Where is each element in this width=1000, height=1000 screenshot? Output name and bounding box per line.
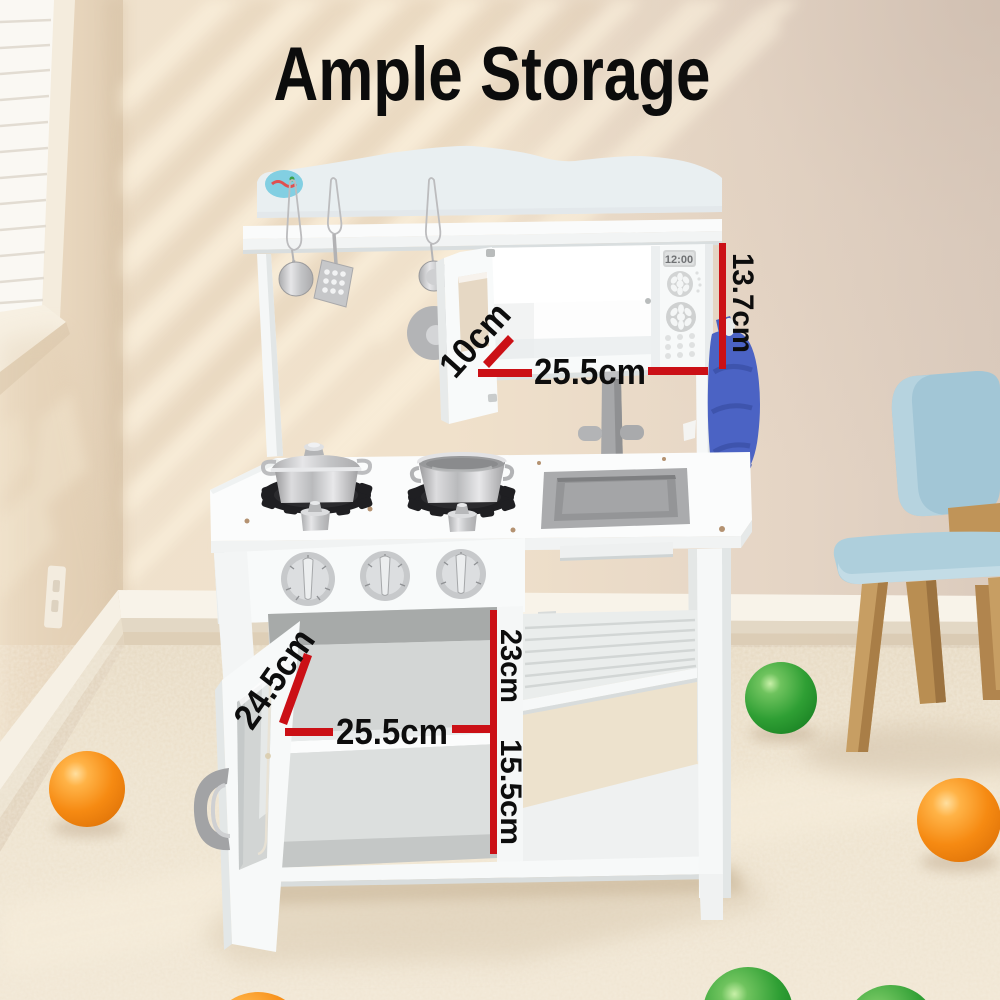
svg-text:Ample Storage: Ample Storage bbox=[274, 32, 711, 117]
svg-text:13.7cm: 13.7cm bbox=[726, 253, 759, 353]
svg-text:25.5cm: 25.5cm bbox=[336, 711, 448, 752]
svg-text:12:00: 12:00 bbox=[665, 254, 693, 266]
svg-text:23cm: 23cm bbox=[494, 629, 527, 703]
svg-text:15.5cm: 15.5cm bbox=[494, 739, 527, 845]
svg-text:25.5cm: 25.5cm bbox=[534, 351, 646, 392]
